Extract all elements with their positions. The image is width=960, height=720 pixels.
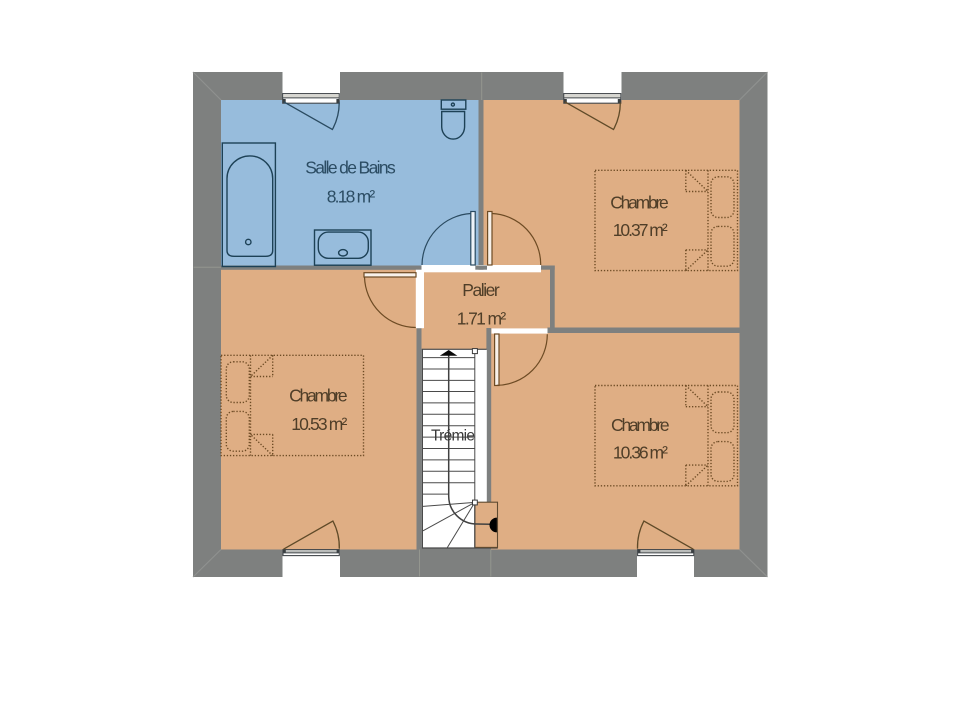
svg-text:Palier: Palier xyxy=(462,280,500,300)
svg-text:Chambre: Chambre xyxy=(289,385,348,405)
svg-text:8.18 m²: 8.18 m² xyxy=(327,187,376,207)
svg-text:Trémie: Trémie xyxy=(431,427,475,444)
svg-text:Chambre: Chambre xyxy=(610,193,669,213)
svg-text:Chambre: Chambre xyxy=(611,415,670,435)
svg-text:Salle de Bains: Salle de Bains xyxy=(305,157,396,177)
svg-text:1.71 m²: 1.71 m² xyxy=(457,308,507,328)
svg-text:10.36 m²: 10.36 m² xyxy=(613,442,668,462)
svg-text:10.53 m²: 10.53 m² xyxy=(291,414,347,434)
svg-text:10.37 m²: 10.37 m² xyxy=(613,220,668,240)
